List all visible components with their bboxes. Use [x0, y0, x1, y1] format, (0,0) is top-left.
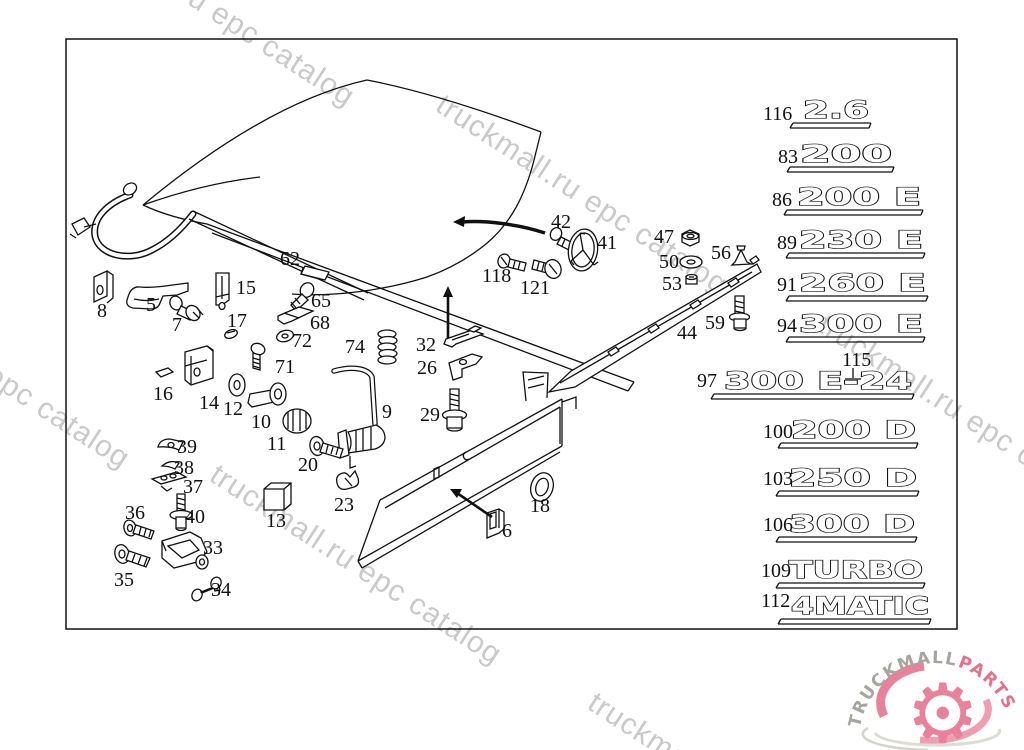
badge-ref-97: 97	[697, 371, 717, 391]
part-glyph-10	[248, 383, 286, 407]
part-glyph-35	[113, 543, 150, 567]
callout-9: 9	[382, 402, 392, 422]
callout-53: 53	[662, 274, 682, 294]
callout-74: 74	[345, 337, 365, 357]
badge-ref-89: 89	[777, 233, 797, 253]
callout-15: 15	[236, 278, 256, 298]
part-glyph-56	[732, 246, 751, 265]
callout-11: 11	[267, 434, 286, 454]
badge-ref-83: 83	[778, 147, 798, 167]
callout-32: 32	[416, 335, 436, 355]
badge-260e: 260 E	[786, 269, 928, 301]
badge-230e: 230 E	[786, 226, 925, 258]
callout-18: 18	[530, 496, 550, 516]
part-glyph-15	[216, 273, 229, 310]
badge-ref-106: 106	[763, 515, 793, 535]
callout-40: 40	[185, 507, 205, 527]
callout-33: 33	[203, 538, 223, 558]
callout-62: 62	[280, 249, 300, 269]
part-glyph-8	[94, 271, 113, 303]
part-glyph-53	[686, 275, 697, 285]
badge-text: 230 E	[799, 226, 923, 254]
badge-text: 4MATIC	[791, 592, 929, 620]
callout-44: 44	[677, 323, 697, 343]
mercedes-star-icon	[566, 227, 601, 273]
callout-65: 65	[311, 291, 331, 311]
badge-ref-100: 100	[763, 422, 793, 442]
part-glyph-12	[229, 374, 245, 396]
callout-13: 13	[266, 511, 286, 531]
badge-200e: 200 E	[784, 183, 923, 215]
part-glyph-23	[337, 471, 359, 489]
callout-17: 17	[227, 311, 247, 331]
part-glyph-74-spring	[378, 330, 397, 364]
callout-35: 35	[114, 570, 134, 590]
part-glyph-11	[283, 409, 311, 433]
callout-121: 121	[520, 278, 550, 298]
callout-72: 72	[292, 331, 312, 351]
callout-7: 7	[172, 315, 182, 335]
badge-ref-91: 91	[777, 275, 797, 295]
callout-56: 56	[711, 243, 731, 263]
badge-text: 200	[800, 140, 892, 168]
part-glyph-13	[264, 483, 291, 510]
badge-ref-116: 116	[763, 104, 792, 124]
callout-71: 71	[275, 357, 295, 377]
gear-icon: ⚙	[906, 667, 980, 750]
callout-26: 26	[417, 358, 437, 378]
callout-6: 6	[502, 521, 512, 541]
badge-ref-109: 109	[761, 561, 791, 581]
callout-47: 47	[654, 227, 674, 247]
part-glyph-68	[278, 307, 313, 324]
callout-36: 36	[125, 503, 145, 523]
badge-ref-86: 86	[772, 190, 792, 210]
badge-text: 300 D	[789, 510, 915, 538]
badge-text: 250 D	[789, 464, 917, 492]
badge-text: 200 E	[797, 183, 921, 211]
badge-ref-115: 115	[842, 350, 871, 370]
callout-42: 42	[551, 212, 571, 232]
badge-text: 200 D	[791, 416, 916, 444]
part-glyph-29	[443, 389, 467, 431]
badge-ref-112: 112	[761, 591, 790, 611]
badge-ref-103: 103	[763, 469, 793, 489]
badge-text: 300 E	[799, 310, 923, 338]
callout-14: 14	[199, 393, 219, 413]
badge-4matic: 4MATIC	[778, 592, 931, 624]
callout-16: 16	[153, 384, 173, 404]
badge-text: 2.6	[803, 96, 869, 124]
badge-300e-24: 300 E-24	[711, 367, 914, 399]
page: truckmall.ru epc catalog truckmall.ru ep…	[0, 0, 1024, 750]
badge-text: TURBO	[789, 556, 923, 584]
callout-38: 38	[174, 458, 194, 478]
diagram-canvas: 2.6 200 200 E 230 E 260 E 300 E 300 E-24	[0, 0, 1024, 750]
callout-10: 10	[251, 412, 271, 432]
part-glyph-33	[162, 532, 208, 569]
callout-37: 37	[183, 477, 203, 497]
badge-300d: 300 D	[776, 510, 917, 542]
lock-actuator	[338, 425, 385, 468]
badge-300e: 300 E	[786, 310, 925, 342]
badge-2.6: 2.6	[790, 96, 871, 128]
truckmall-logo: ⚙ TRUCKMALLPARTS	[845, 648, 1019, 750]
part-glyph-14	[185, 346, 213, 385]
part-glyph-50	[680, 256, 702, 268]
badge-ref-94: 94	[777, 316, 797, 336]
part-glyph-16	[156, 368, 173, 377]
callout-50: 50	[659, 252, 679, 272]
part-glyph-47	[682, 230, 699, 246]
badge-200: 200	[787, 140, 894, 172]
callout-20: 20	[298, 455, 318, 475]
badge-turbo: TURBO	[776, 556, 925, 588]
callout-68: 68	[310, 313, 330, 333]
callout-39: 39	[177, 437, 197, 457]
callout-34: 34	[211, 580, 231, 600]
callout-118: 118	[482, 266, 511, 286]
callout-5: 5	[146, 295, 156, 315]
part-glyph-26	[449, 354, 482, 380]
callout-23: 23	[334, 495, 354, 515]
callout-12: 12	[223, 399, 243, 419]
callout-41: 41	[597, 233, 617, 253]
callout-8: 8	[97, 301, 107, 321]
part-glyph-71	[250, 341, 267, 370]
part-glyph-59	[730, 296, 750, 331]
part-glyph-9-rod	[334, 368, 375, 424]
callout-59: 59	[705, 313, 725, 333]
badge-text: 300 E-24	[724, 367, 912, 395]
badge-text: 260 E	[799, 269, 926, 297]
callout-29: 29	[420, 405, 440, 425]
badge-250d: 250 D	[776, 464, 919, 496]
badge-200d: 200 D	[778, 416, 918, 448]
